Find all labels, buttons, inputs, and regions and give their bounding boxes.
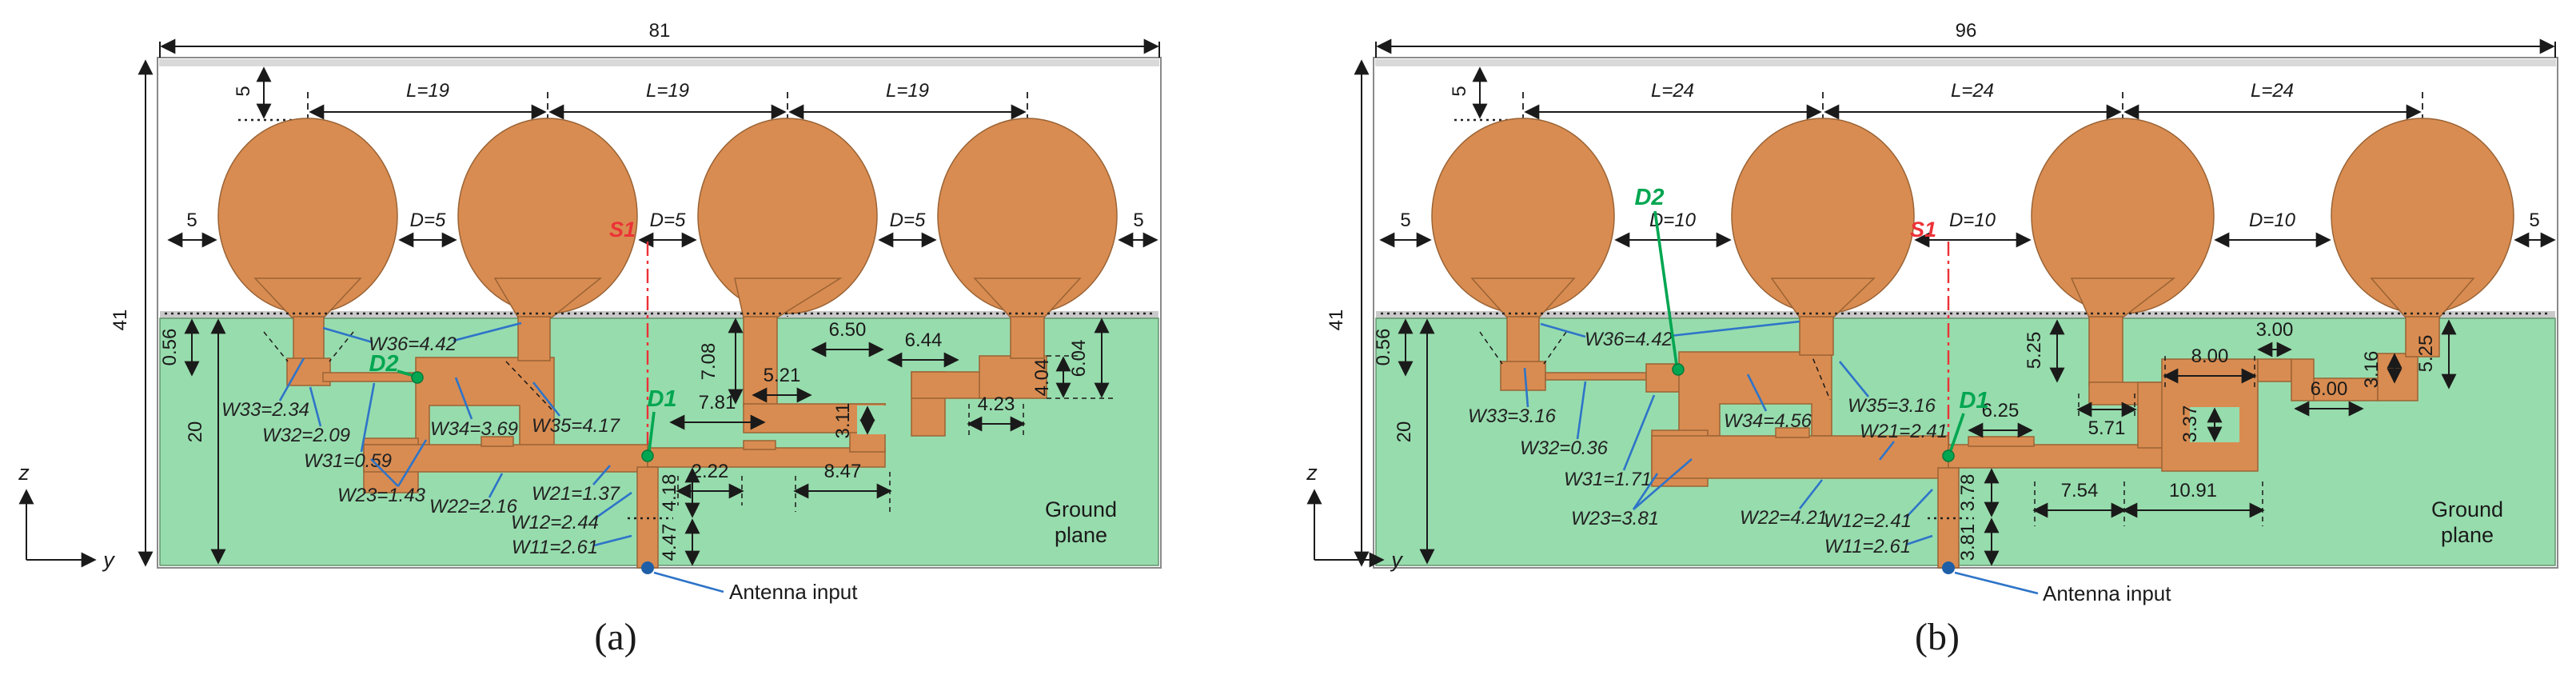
pitch-label-1: L=19 (406, 80, 449, 102)
antenna-geometry-figure: 81 41 5 L=19 L=19 L=19 (0, 0, 2576, 675)
ground-plane-label-2: plane (2441, 523, 2494, 547)
label-d2: D2 (369, 351, 398, 377)
substrate-top-edge (1375, 59, 2556, 66)
axis-z-label: z (1306, 461, 1318, 485)
label-w31: W31=0.59 (304, 450, 392, 472)
panel-b: 96 41 5 L=24 L=24 L=24 5 D=10 (1288, 0, 2576, 675)
thin-line-w32 (1545, 373, 1646, 380)
dim-3-78: 3.78 (1957, 474, 1979, 512)
dim-overall-width: 96 (1376, 20, 2555, 58)
substrate-top-edge (159, 59, 1159, 66)
dim-6-44: 6.44 (905, 330, 943, 351)
dim-10-91: 10.91 (2169, 480, 2217, 501)
element2-stub (518, 317, 550, 361)
element4-step (2378, 353, 2418, 401)
ground-gap-label: 0.56 (1373, 329, 1394, 366)
label-w21: W21=1.37 (532, 483, 621, 505)
label-w31: W31=1.71 (1564, 469, 1652, 490)
label-w12: W12=2.41 (1824, 510, 1912, 532)
ground-depth-label: 20 (185, 421, 206, 443)
label-w22: W22=4.21 (1740, 507, 1828, 529)
label-w34: W34=4.56 (1724, 410, 1812, 432)
element1-stub (1507, 317, 1539, 363)
d2-marker-dot (1673, 364, 1684, 375)
dim-4-18: 4.18 (659, 474, 680, 512)
coordinate-axes: z y (18, 461, 115, 572)
pitch-label-3: L=19 (886, 80, 929, 102)
dim-7-08: 7.08 (698, 343, 720, 381)
dim-8-47: 8.47 (824, 461, 862, 482)
label-w34: W34=3.69 (430, 418, 518, 440)
label-w32: W32=0.36 (1520, 437, 1609, 459)
left-margin-label: 5 (186, 210, 197, 231)
dim-4-04: 4.04 (1031, 359, 1053, 397)
element3-stub (2089, 317, 2123, 385)
dim-5-25-right: 5.25 (2415, 335, 2437, 373)
dim-2-22: 2.22 (692, 461, 729, 482)
ground-depth-label: 20 (1394, 421, 1415, 443)
dim-7-81: 7.81 (699, 392, 736, 413)
d1-marker-dot (642, 450, 653, 461)
gap-label-1: D=5 (410, 210, 446, 231)
antenna-input-dot (641, 561, 654, 574)
ground-gap-label: 0.56 (159, 329, 181, 366)
board-height-label: 41 (1326, 310, 1347, 331)
label-w11: W11=2.61 (1824, 536, 1911, 557)
board-width-label: 81 (649, 20, 671, 42)
antenna-input-dot (1942, 561, 1955, 574)
label-d2: D2 (1634, 185, 1664, 210)
pitch-label-2: L=24 (1951, 80, 1994, 102)
label-w35: W35=3.16 (1848, 395, 1936, 417)
element2-stub (1800, 317, 1833, 355)
antenna-input-label: Antenna input (729, 580, 858, 604)
label-w22: W22=2.16 (429, 496, 518, 517)
dim-5-71: 5.71 (2088, 417, 2126, 439)
top-offset-label: 5 (233, 86, 254, 96)
neck-3-00 (2258, 359, 2291, 381)
label-w23: W23=3.81 (1571, 508, 1659, 529)
label-w23: W23=1.43 (337, 485, 426, 506)
gap-label-3: D=5 (890, 210, 926, 231)
antenna-input-label: Antenna input (2043, 581, 2171, 605)
label-d1: D1 (1959, 388, 1988, 413)
ground-top-edge (1376, 311, 2555, 318)
dim-7-54: 7.54 (2061, 480, 2099, 501)
dim-3-00: 3.00 (2256, 319, 2294, 341)
ground-plane-label-1: Ground (1045, 497, 1117, 521)
dim-3-16: 3.16 (2361, 351, 2383, 389)
label-w11: W11=2.61 (512, 537, 598, 558)
dim-3-81: 3.81 (1957, 524, 1979, 561)
ground-plane-label-2: plane (1055, 523, 1107, 547)
panel-a: 81 41 5 L=19 L=19 L=19 (0, 0, 1288, 675)
right-margin-label: 5 (1133, 210, 1143, 231)
dim-6-00: 6.00 (2311, 378, 2348, 400)
element4-stub (1011, 317, 1044, 358)
caption-b: (b) (1915, 616, 1960, 658)
element3-stub (744, 317, 777, 406)
dim-4-47: 4.47 (659, 524, 680, 561)
dim-overall-height: 41 (110, 62, 146, 565)
ground-plane-label-1: Ground (2431, 497, 2503, 521)
dim-6-04: 6.04 (1068, 340, 1090, 377)
notch-3-11 (857, 405, 886, 434)
dim-8-00: 8.00 (2191, 345, 2229, 367)
left-margin-label: 5 (1400, 210, 1410, 231)
dim-5-25-left: 5.25 (2024, 332, 2045, 369)
d1-marker-dot (1943, 450, 1954, 461)
label-w21: W21=2.41 (1860, 421, 1948, 442)
gap-label-2: D=5 (650, 210, 686, 231)
axis-y-label: y (102, 548, 115, 572)
s1-label: S1 (609, 218, 636, 242)
d2-marker-dot (412, 372, 423, 383)
label-w12: W12=2.44 (511, 512, 599, 533)
dim-5-21: 5.21 (764, 365, 801, 386)
dim-3-11: 3.11 (832, 403, 854, 439)
pitch-label-2: L=19 (646, 80, 689, 102)
board-width-label: 96 (1956, 20, 1977, 42)
board-height-label: 41 (110, 310, 131, 331)
dim-4-23: 4.23 (978, 393, 1015, 415)
dim-overall-width: 81 (160, 20, 1159, 58)
axis-y-label: y (1390, 548, 1403, 572)
pitch-label-3: L=24 (2251, 80, 2294, 102)
mainline-step-right (1968, 437, 2034, 446)
right-margin-label: 5 (2529, 210, 2539, 231)
mainline-step-right (744, 441, 776, 449)
gap-label-2: D=10 (1949, 210, 1996, 231)
element1-stub (293, 317, 324, 360)
label-d1: D1 (647, 386, 676, 412)
label-w36: W36=4.42 (1585, 329, 1673, 350)
label-w32: W32=2.09 (262, 425, 350, 446)
top-offset-label: 5 (1449, 86, 1470, 96)
axis-z-label: z (18, 461, 30, 485)
mainline-left (364, 445, 648, 472)
dim-3-37: 3.37 (2179, 405, 2201, 443)
dim-overall-height: 41 (1326, 62, 1362, 565)
label-w35: W35=4.17 (532, 415, 621, 437)
element1-step (1501, 361, 1545, 390)
label-w33: W33=2.34 (221, 399, 309, 421)
pitch-label-1: L=24 (1651, 80, 1694, 102)
caption-a: (a) (594, 616, 636, 658)
gap-label-3: D=10 (2249, 210, 2296, 231)
dim-6-50: 6.50 (829, 319, 867, 341)
label-w33: W33=3.16 (1468, 405, 1557, 427)
s1-label: S1 (1910, 218, 1936, 242)
